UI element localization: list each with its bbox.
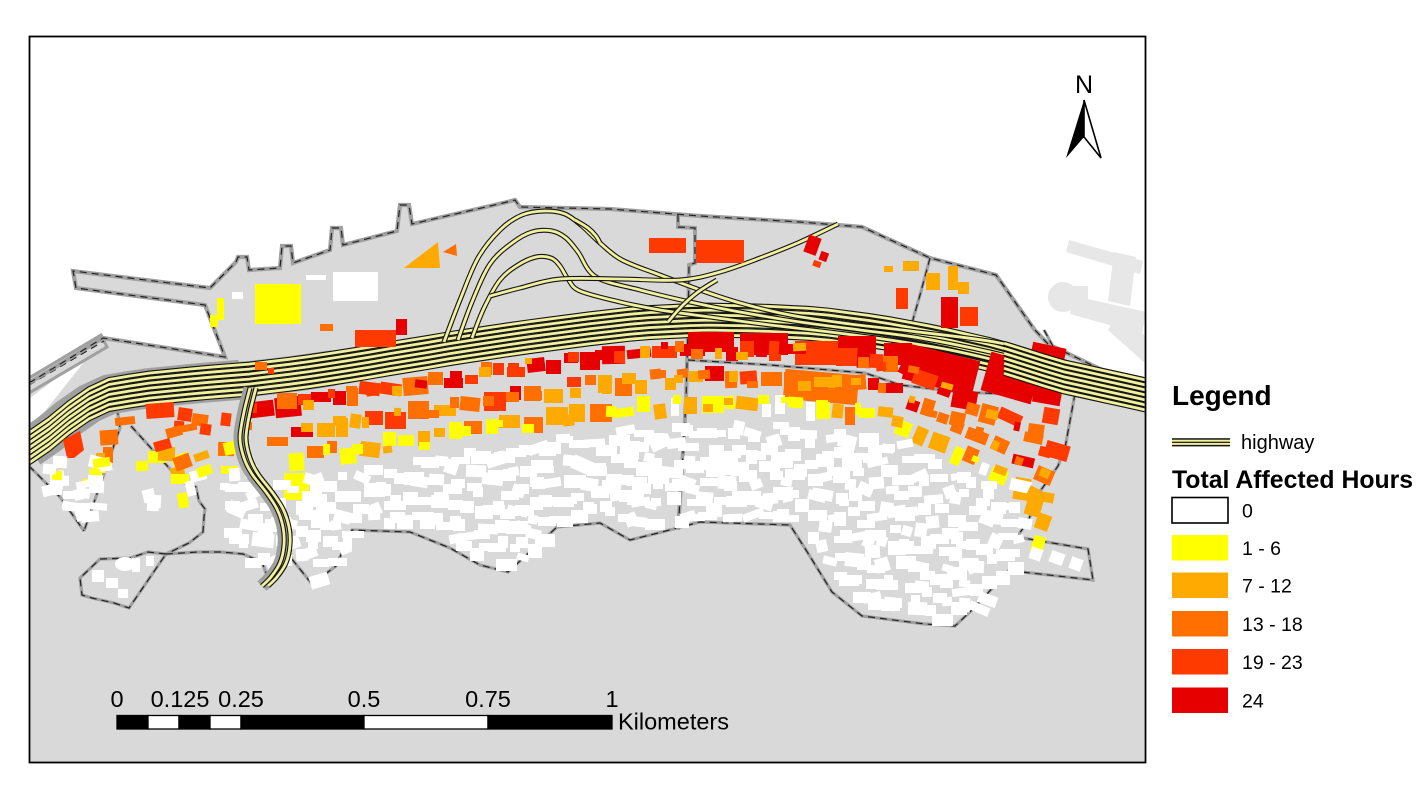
svg-text:13 - 18: 13 - 18 <box>1242 614 1303 636</box>
svg-text:1: 1 <box>605 686 618 712</box>
svg-text:0.25: 0.25 <box>218 686 264 712</box>
svg-text:7 - 12: 7 - 12 <box>1242 576 1292 598</box>
svg-text:Kilometers: Kilometers <box>618 709 729 735</box>
svg-text:0: 0 <box>1242 501 1253 523</box>
svg-text:0.125: 0.125 <box>151 686 210 712</box>
svg-text:19 - 23: 19 - 23 <box>1242 652 1303 674</box>
svg-text:N: N <box>1075 71 1093 99</box>
svg-text:0.5: 0.5 <box>348 686 381 712</box>
svg-text:1 - 6: 1 - 6 <box>1242 538 1281 560</box>
svg-text:0: 0 <box>110 686 123 712</box>
svg-text:Total Affected Hours: Total Affected Hours <box>1172 467 1413 494</box>
svg-text:24: 24 <box>1242 691 1264 713</box>
svg-text:Legend: Legend <box>1172 380 1272 411</box>
svg-text:0.75: 0.75 <box>465 686 511 712</box>
svg-text:highway: highway <box>1241 432 1314 454</box>
